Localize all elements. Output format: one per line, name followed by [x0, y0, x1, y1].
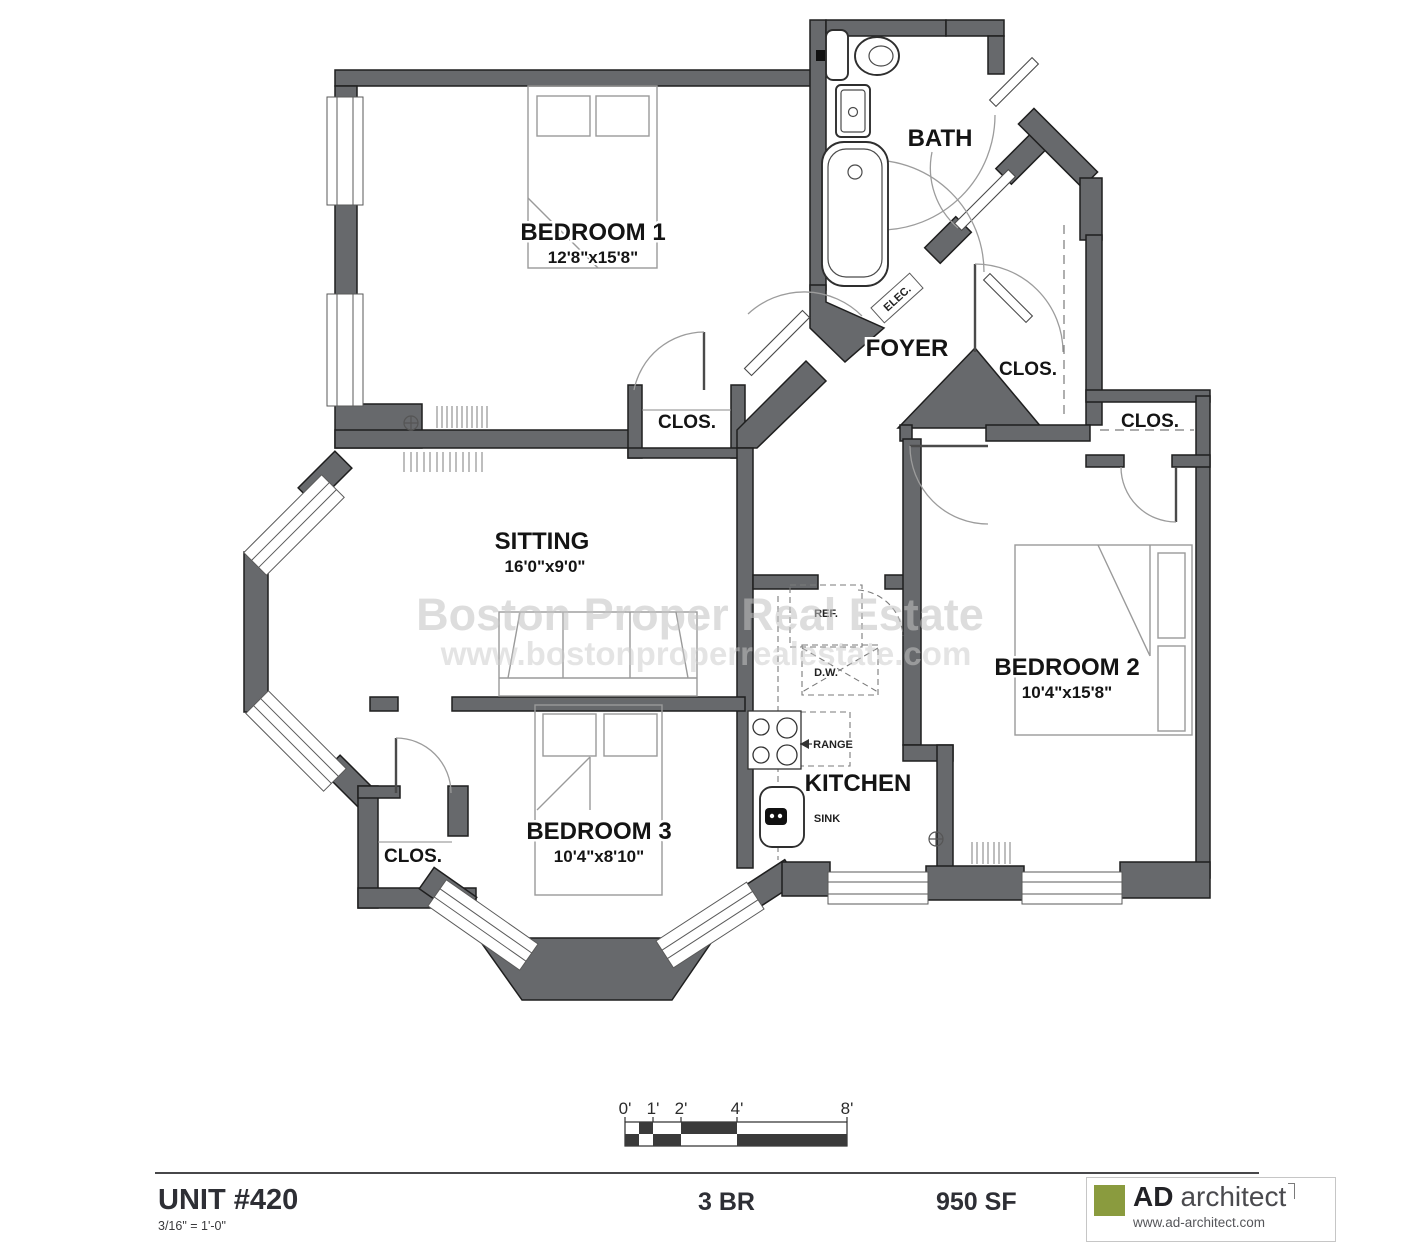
- architect-website: www.ad-architect.com: [1133, 1215, 1265, 1230]
- scale-tick-0: 0': [619, 1099, 632, 1118]
- sitting-dims: 16'0"x9'0": [505, 557, 586, 576]
- watermark: Boston Proper Real Estate www.bostonprop…: [416, 589, 984, 672]
- window-icon: [327, 294, 363, 406]
- window-icon: [428, 880, 538, 970]
- window-icon: [327, 97, 363, 205]
- toilet-icon: [816, 30, 899, 80]
- watermark-line2: www.bostonproperrealestate.com: [440, 635, 972, 672]
- kitchen-sink-icon: [760, 787, 804, 847]
- closet-label: CLOS.: [658, 412, 716, 433]
- bedroom1-label: BEDROOM 1: [520, 219, 665, 246]
- window-icon: [656, 882, 764, 968]
- scale-tick-1: 1': [647, 1099, 660, 1118]
- closet-label: CLOS.: [999, 359, 1057, 380]
- logo-ad-text: AD: [1133, 1181, 1173, 1212]
- watermark-line1: Boston Proper Real Estate: [416, 589, 984, 640]
- logo-corner-icon: [1288, 1183, 1295, 1199]
- closet-label: CLOS.: [384, 846, 442, 867]
- window-icon: [828, 872, 928, 904]
- scale-tick-2: 2': [675, 1099, 688, 1118]
- range-label: RANGE: [813, 739, 853, 751]
- survey-point-icon: [929, 832, 943, 846]
- square-footage: 950 SF: [936, 1188, 1017, 1217]
- window-icon: [1022, 872, 1122, 904]
- logo-architect-text: architect: [1180, 1181, 1286, 1212]
- bedroom1-dims: 12'8"x15'8": [548, 248, 638, 267]
- logo-square-icon: [1094, 1185, 1125, 1216]
- bedroom2-dims: 10'4"x15'8": [1022, 683, 1112, 702]
- floor-plan-drawing: ELEC. BEDROOM 1 12'8"x15'8" BATH FOYER S…: [0, 0, 1410, 1248]
- bedroom3-dims: 10'4"x8'10": [554, 847, 644, 866]
- bed-icon: [535, 705, 662, 895]
- architect-logo: ADarchitect www.ad-architect.com: [1086, 1177, 1336, 1242]
- kitchen-label: KITCHEN: [805, 770, 912, 797]
- foyer-label: FOYER: [866, 335, 949, 362]
- survey-point-icon: [404, 416, 418, 430]
- window-icon: [246, 691, 346, 791]
- floor-plan-page: ELEC. BEDROOM 1 12'8"x15'8" BATH FOYER S…: [0, 0, 1410, 1248]
- bedroom-count: 3 BR: [698, 1188, 755, 1217]
- bath-sink-icon: [836, 85, 870, 137]
- stove-icon: [748, 711, 801, 769]
- bathtub-icon: [822, 142, 888, 286]
- scale-tick-4: 4': [731, 1099, 744, 1118]
- bedroom3-label: BEDROOM 3: [526, 818, 671, 845]
- sink-label: SINK: [814, 813, 840, 825]
- footer-divider: [155, 1172, 1259, 1174]
- window-icon: [244, 475, 344, 575]
- bedroom2-label: BEDROOM 2: [994, 654, 1139, 681]
- scale-bar: 0' 1' 2' 4' 8': [619, 1099, 854, 1146]
- bath-fixtures: [816, 30, 899, 286]
- bath-label: BATH: [908, 125, 973, 152]
- scale-tick-8: 8': [841, 1099, 854, 1118]
- bed-icon: [1015, 545, 1192, 735]
- unit-number: UNIT #420: [158, 1184, 298, 1217]
- sitting-label: SITTING: [495, 528, 590, 555]
- closet-label: CLOS.: [1121, 411, 1179, 432]
- drawing-scale-note: 3/16" = 1'-0": [158, 1219, 226, 1233]
